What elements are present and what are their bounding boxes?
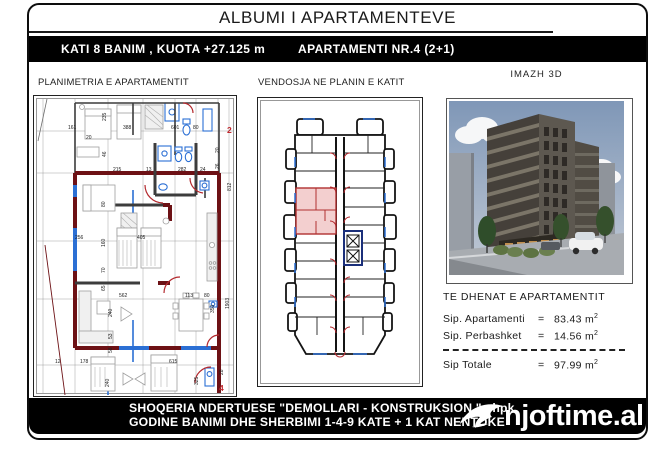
svg-text:70: 70 [101,267,107,273]
svg-text:113: 113 [185,293,193,299]
apartment-data-panel: TE DHENAT E APARTAMENTIT Sip. Apartament… [443,291,643,376]
svg-text:325: 325 [194,376,200,385]
svg-text:80: 80 [101,201,107,207]
row-label: Sip. Apartamenti [443,313,538,326]
image3d-title: IMAZH 3D [446,69,627,80]
row-label: Sip Totale [443,359,538,372]
svg-text:2: 2 [227,125,232,135]
key-plan-panel [257,97,423,387]
svg-text:562: 562 [119,293,128,299]
building-render [449,101,624,275]
company-info: SHOQERIA NDERTUESE "DEMOLLARI - KONSTRUK… [129,402,515,429]
svg-text:26: 26 [215,163,221,169]
svg-text:24: 24 [200,167,206,173]
data-title: TE DHENAT E APARTAMENTIT [443,291,643,303]
svg-text:240: 240 [108,308,114,317]
svg-text:161: 161 [68,125,77,131]
building-outline [284,119,396,354]
svg-text:256: 256 [75,235,84,241]
svg-text:4: 4 [219,383,224,393]
company-name: SHOQERIA NDERTUESE "DEMOLLARI - KONSTRUK… [129,402,515,416]
svg-text:13: 13 [146,167,152,173]
svg-text:812: 812 [227,182,233,191]
svg-text:350: 350 [210,304,216,313]
svg-text:80: 80 [204,293,210,299]
svg-text:20: 20 [215,147,221,153]
svg-text:12: 12 [55,359,61,365]
bird-icon [460,401,504,431]
header-bar: KATI 8 BANIM , KUOTA +27.125 m APARTAMEN… [29,36,646,62]
floor-plan-panel: 1613886018020235462151328224812801607065… [33,95,237,397]
row-label: Sip. Perbashket [443,330,538,343]
svg-text:215: 215 [113,167,122,173]
title-underline [29,31,553,33]
dashed-separator [443,349,625,351]
furniture-top [77,105,163,158]
logo-text: njoftime.al [504,400,644,433]
plan-title: PLANIMETRIA E APARTAMENTIT [38,77,189,88]
data-row-total: Sip Totale = 97.99 m2 [443,359,643,372]
data-row-common: Sip. Perbashket = 14.56 m2 [443,330,643,343]
svg-text:58: 58 [108,347,114,353]
furniture-bottom [91,355,177,391]
elevator [344,231,362,265]
highlighted-apartment [296,188,336,234]
page-title: ALBUMI I APARTAMENTEVE [27,8,648,28]
keyplan-title: VENDOSJA NE PLANIN E KATIT [258,77,405,88]
njoftime-logo: njoftime.al [460,398,644,434]
page: ALBUMI I APARTAMENTEVE KATI 8 BANIM , KU… [0,0,670,450]
svg-text:240: 240 [105,378,111,387]
svg-text:601: 601 [171,125,180,131]
building-description: GODINE BANIMI DHE SHERBIMI 1-4-9 KATE + … [129,416,515,430]
svg-text:46: 46 [102,151,108,157]
svg-text:405: 405 [137,235,146,241]
floor-info: KATI 8 BANIM , KUOTA +27.125 m [61,42,265,56]
svg-text:160: 160 [101,238,107,247]
svg-text:1903: 1903 [225,298,231,309]
apartment-info: APARTAMENTI NR.4 (2+1) [298,42,455,56]
data-row-apartment: Sip. Apartamenti = 83.43 m2 [443,313,643,326]
svg-text:53: 53 [108,333,114,339]
svg-text:235: 235 [102,112,108,121]
svg-text:178: 178 [80,359,89,365]
svg-text:80: 80 [193,125,199,131]
floor-plan-drawing: 1613886018020235462151328224812801607065… [33,95,237,397]
key-plan-drawing [257,97,423,387]
svg-text:615: 615 [169,359,178,365]
interior-walls [75,143,205,283]
svg-text:28: 28 [219,369,225,375]
svg-text:388: 388 [123,125,132,131]
image-3d-panel [446,98,633,284]
svg-text:282: 282 [178,167,187,173]
svg-text:65: 65 [101,285,107,291]
furniture-main [79,185,217,343]
svg-text:20: 20 [86,135,92,141]
background-building [449,153,471,257]
